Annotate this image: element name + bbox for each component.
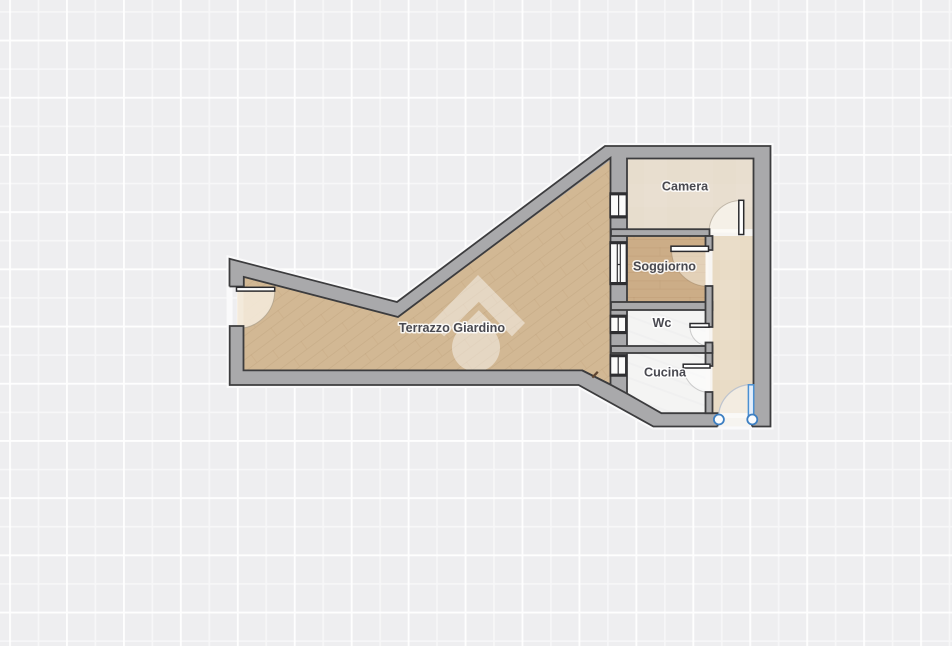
svg-text:Camera: Camera (662, 180, 709, 194)
svg-text:Wc: Wc (653, 316, 672, 330)
svg-text:Terrazzo Giardino: Terrazzo Giardino (399, 321, 505, 335)
svg-text:Cucina: Cucina (644, 366, 687, 380)
svg-text:Soggiorno: Soggiorno (633, 260, 696, 274)
